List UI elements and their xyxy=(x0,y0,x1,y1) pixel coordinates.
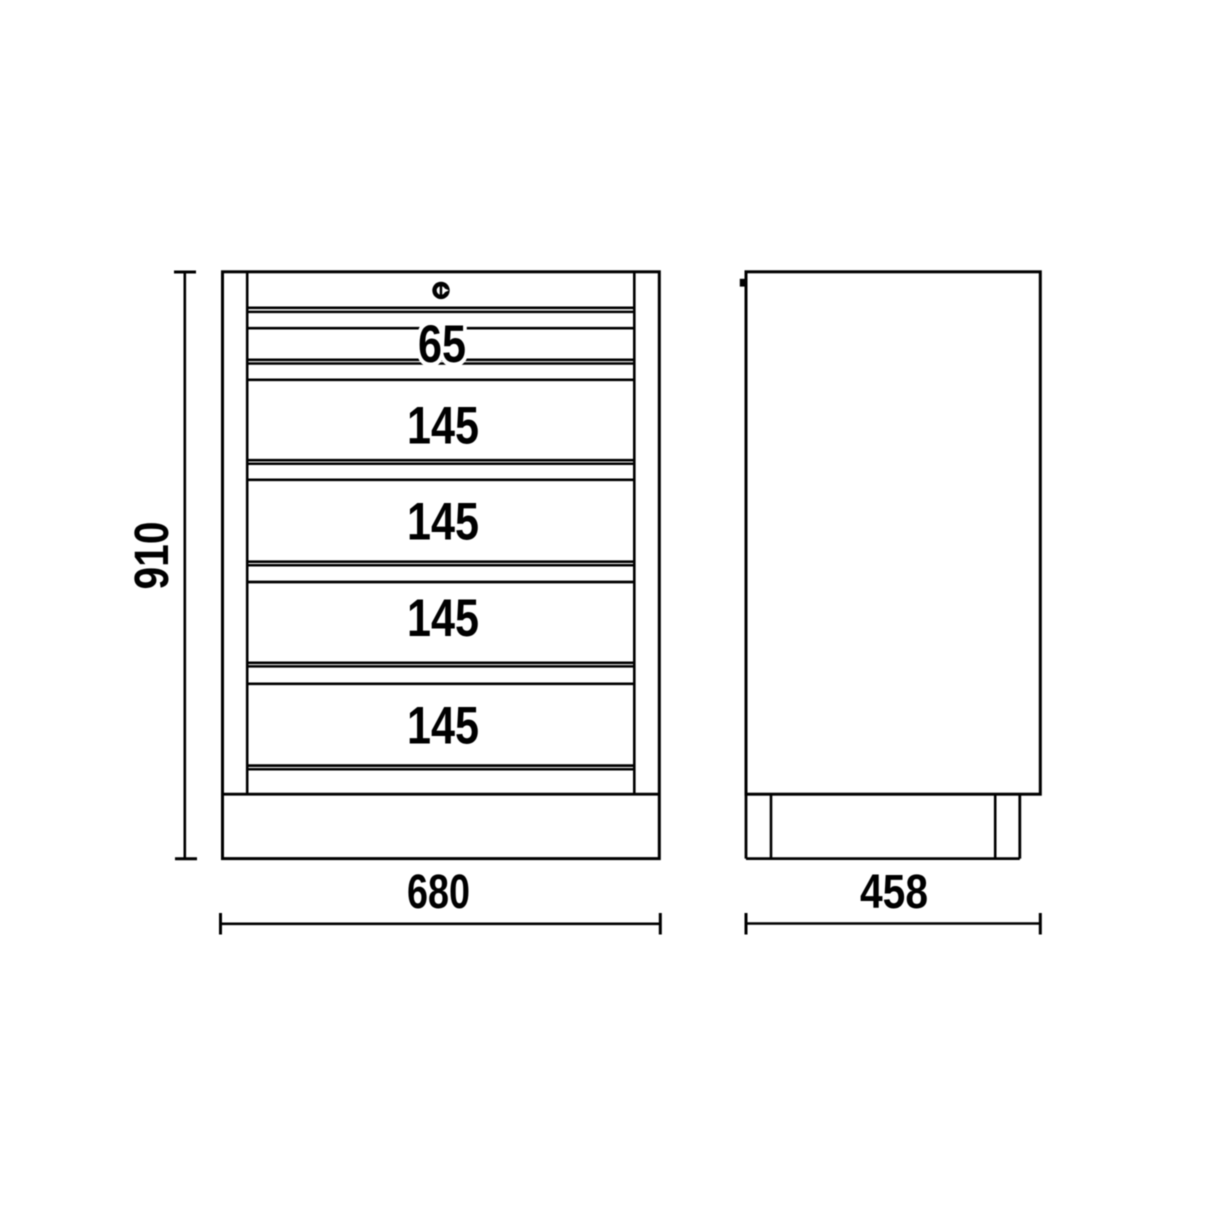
svg-text:145: 145 xyxy=(407,697,479,756)
svg-text:145: 145 xyxy=(407,589,479,648)
svg-text:680: 680 xyxy=(407,866,470,919)
svg-text:910: 910 xyxy=(126,522,179,590)
svg-text:145: 145 xyxy=(407,493,479,552)
svg-text:65: 65 xyxy=(418,315,466,374)
svg-text:145: 145 xyxy=(407,397,479,456)
svg-text:458: 458 xyxy=(860,866,928,919)
